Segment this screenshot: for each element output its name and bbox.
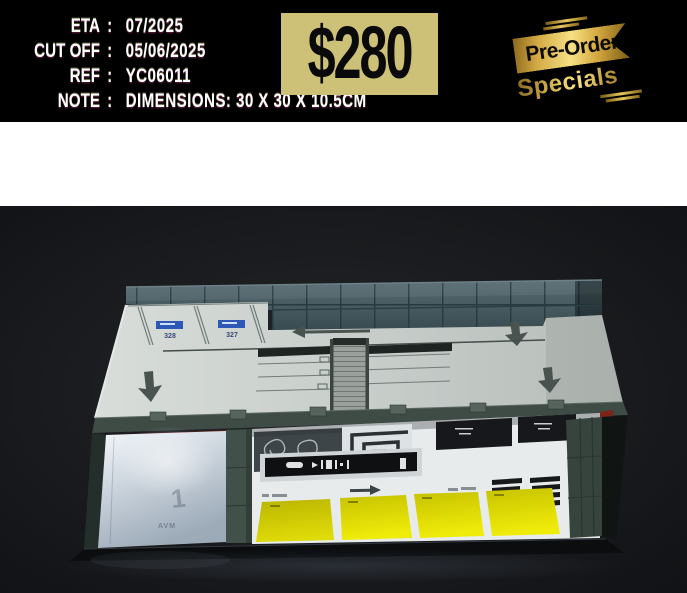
svg-text:327: 327 [226, 332, 238, 339]
cutoff-value: 05/06/2025 [119, 39, 205, 64]
ground-reflection [90, 551, 230, 569]
promo-card: ETA : 07/2025 CUT OFF : 05/06/2025 REF :… [0, 0, 687, 593]
note-separator: : [100, 89, 119, 114]
product-photo: 328 327 [0, 206, 687, 593]
header-bar: ETA : 07/2025 CUT OFF : 05/06/2025 REF :… [0, 0, 687, 122]
cutoff-label: CUT OFF [0, 39, 100, 64]
eta-separator: : [100, 14, 119, 39]
svg-text:328: 328 [164, 333, 176, 340]
preorder-specials-badge: Pre-Order Specials [496, 0, 674, 127]
lit-left-wall: 1 AVM [98, 426, 226, 548]
note-label: NOTE [0, 89, 100, 114]
right-side-shadow [602, 415, 628, 540]
pillar-left [226, 429, 252, 543]
white-divider [0, 122, 687, 206]
signage-strip [260, 448, 422, 482]
pillar-right [566, 417, 602, 538]
ref-label: REF [0, 64, 100, 89]
center-ramp [326, 338, 373, 421]
cutoff-separator: : [100, 39, 119, 64]
diorama-illustration: 328 327 [0, 206, 687, 593]
ref-value: YC06011 [119, 64, 191, 89]
ref-separator: : [100, 64, 119, 89]
eta-value: 07/2025 [119, 14, 183, 39]
eta-label: ETA [0, 14, 100, 39]
wall-marking: AVM [158, 523, 176, 530]
interior-level: 1 AVM [84, 413, 628, 549]
price-badge: $280 [306, 13, 413, 95]
